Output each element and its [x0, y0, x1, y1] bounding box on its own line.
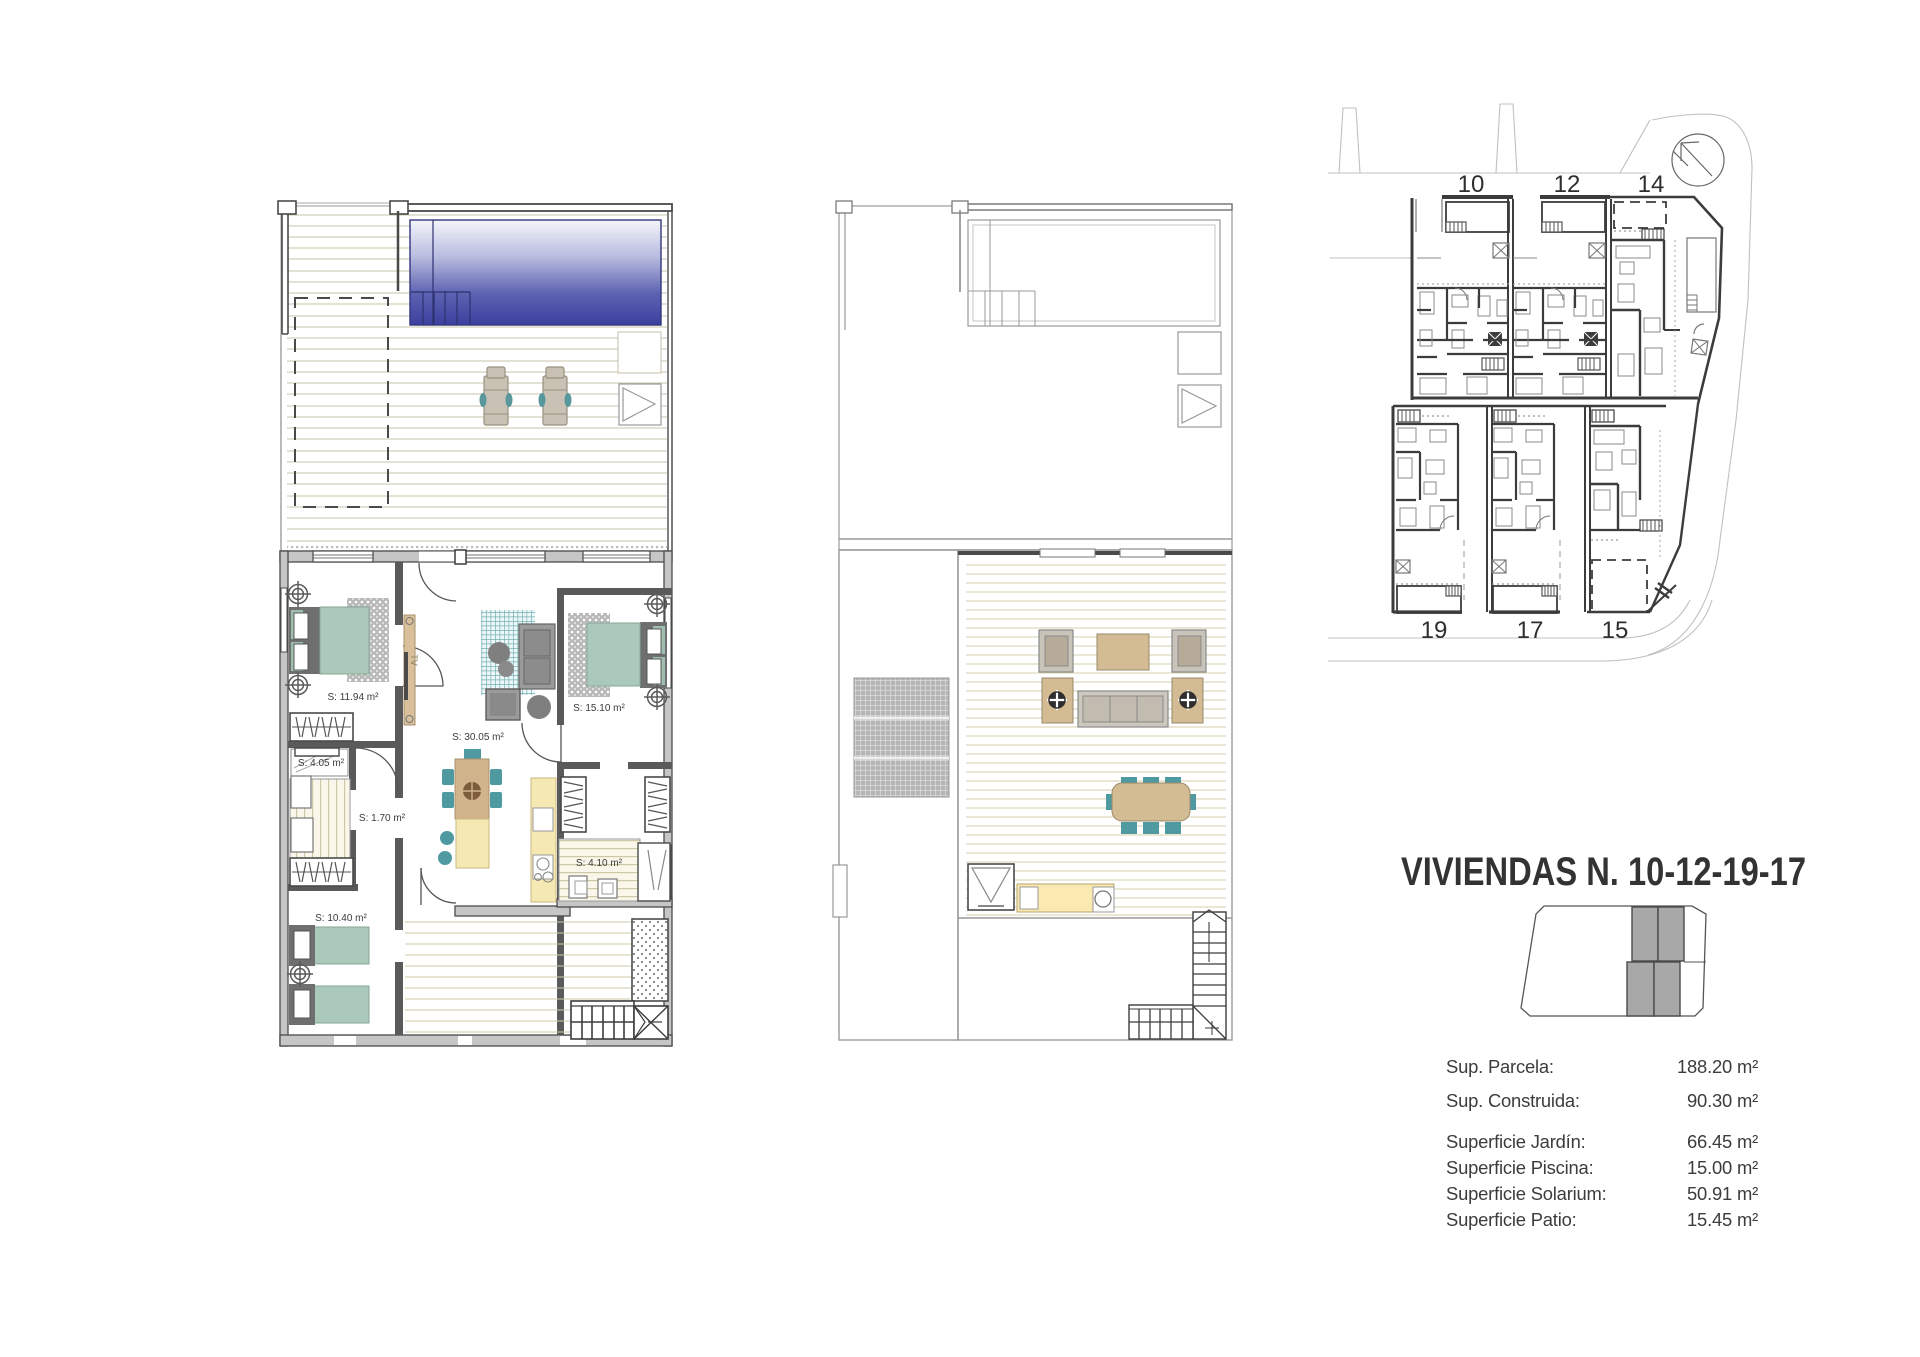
- svg-text:Sup. Parcela:: Sup. Parcela:: [1446, 1056, 1554, 1077]
- svg-text:Superficie Jardín:: Superficie Jardín:: [1446, 1131, 1586, 1152]
- svg-text:17: 17: [1517, 617, 1544, 644]
- svg-text:S: 11.94 m²: S: 11.94 m²: [328, 692, 380, 703]
- svg-text:S: 30.05 m²: S: 30.05 m²: [452, 732, 504, 743]
- svg-text:15: 15: [1602, 617, 1629, 644]
- svg-text:50.91 m²: 50.91 m²: [1687, 1183, 1758, 1204]
- svg-text:14: 14: [1638, 171, 1665, 198]
- svg-text:15.00 m²: 15.00 m²: [1687, 1157, 1758, 1178]
- svg-text:Superficie Solarium:: Superficie Solarium:: [1446, 1183, 1607, 1204]
- svg-text:90.30 m²: 90.30 m²: [1687, 1090, 1758, 1111]
- svg-text:S: 1.70 m²: S: 1.70 m²: [359, 813, 406, 824]
- svg-text:Superficie Piscina:: Superficie Piscina:: [1446, 1157, 1593, 1178]
- svg-text:Superficie Patio:: Superficie Patio:: [1446, 1209, 1577, 1230]
- svg-text:TV: TV: [409, 654, 419, 666]
- svg-text:19: 19: [1421, 617, 1448, 644]
- svg-text:15.45 m²: 15.45 m²: [1687, 1209, 1758, 1230]
- svg-text:S: 10.40 m²: S: 10.40 m²: [315, 913, 367, 924]
- svg-text:S: 15.10 m²: S: 15.10 m²: [573, 703, 625, 714]
- svg-text:VIVIENDAS N. 10-12-19-17: VIVIENDAS N. 10-12-19-17: [1401, 850, 1806, 894]
- svg-text:66.45 m²: 66.45 m²: [1687, 1131, 1758, 1152]
- svg-text:10: 10: [1458, 171, 1485, 198]
- svg-text:S: 4.10 m²: S: 4.10 m²: [576, 858, 623, 869]
- svg-text:Sup. Construida:: Sup. Construida:: [1446, 1090, 1580, 1111]
- svg-text:188.20 m²: 188.20 m²: [1677, 1056, 1758, 1077]
- svg-text:12: 12: [1554, 171, 1581, 198]
- svg-text:S: 4.05 m²: S: 4.05 m²: [298, 758, 345, 769]
